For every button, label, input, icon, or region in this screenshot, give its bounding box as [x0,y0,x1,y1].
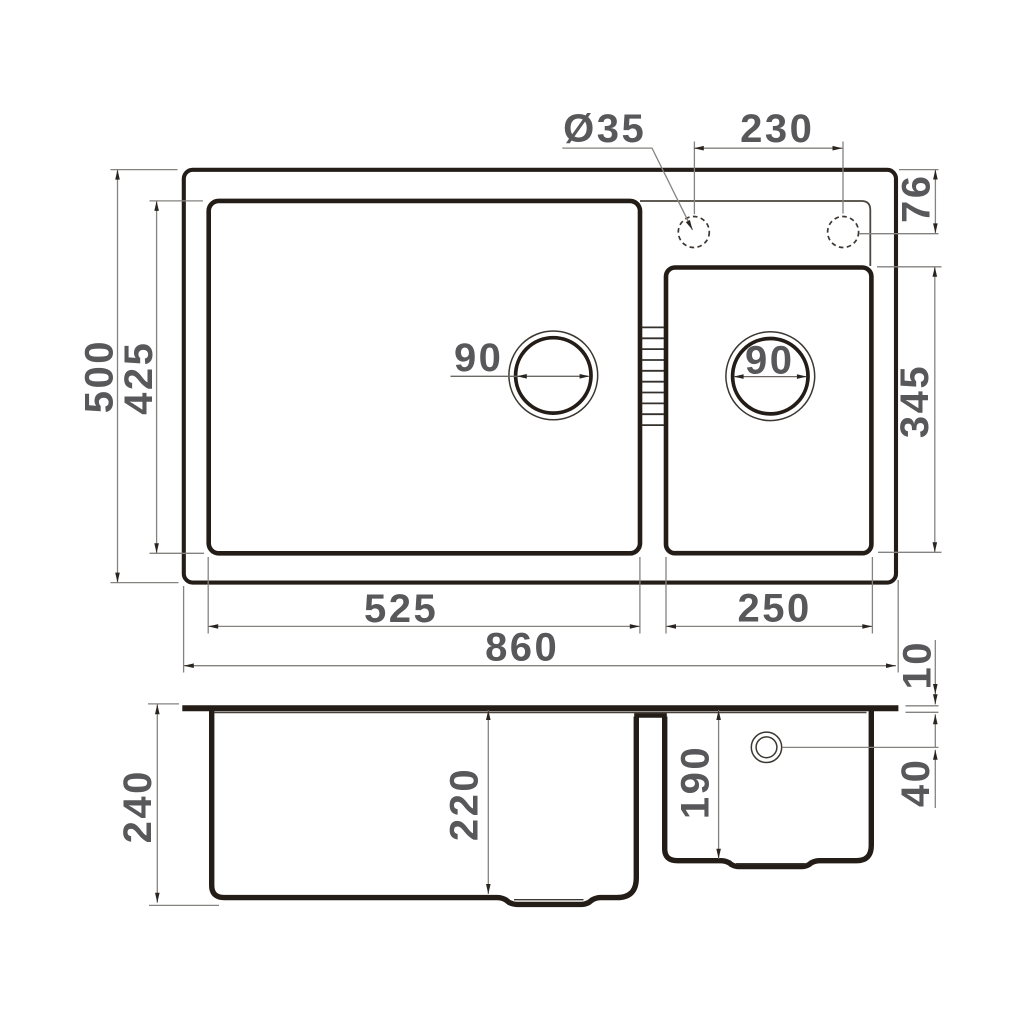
svg-text:525: 525 [364,587,438,631]
svg-text:10: 10 [896,640,940,690]
svg-text:230: 230 [740,107,814,151]
svg-text:190: 190 [674,745,718,819]
svg-text:860: 860 [485,625,559,669]
svg-text:90: 90 [454,336,504,380]
svg-text:76: 76 [894,173,938,223]
svg-text:240: 240 [116,769,160,843]
svg-text:250: 250 [737,587,811,631]
svg-text:425: 425 [117,341,161,415]
svg-text:500: 500 [77,339,121,413]
svg-text:220: 220 [443,767,487,841]
svg-text:Ø35: Ø35 [563,107,646,151]
svg-text:345: 345 [893,364,937,438]
svg-text:90: 90 [745,338,795,382]
svg-text:40: 40 [894,758,938,808]
